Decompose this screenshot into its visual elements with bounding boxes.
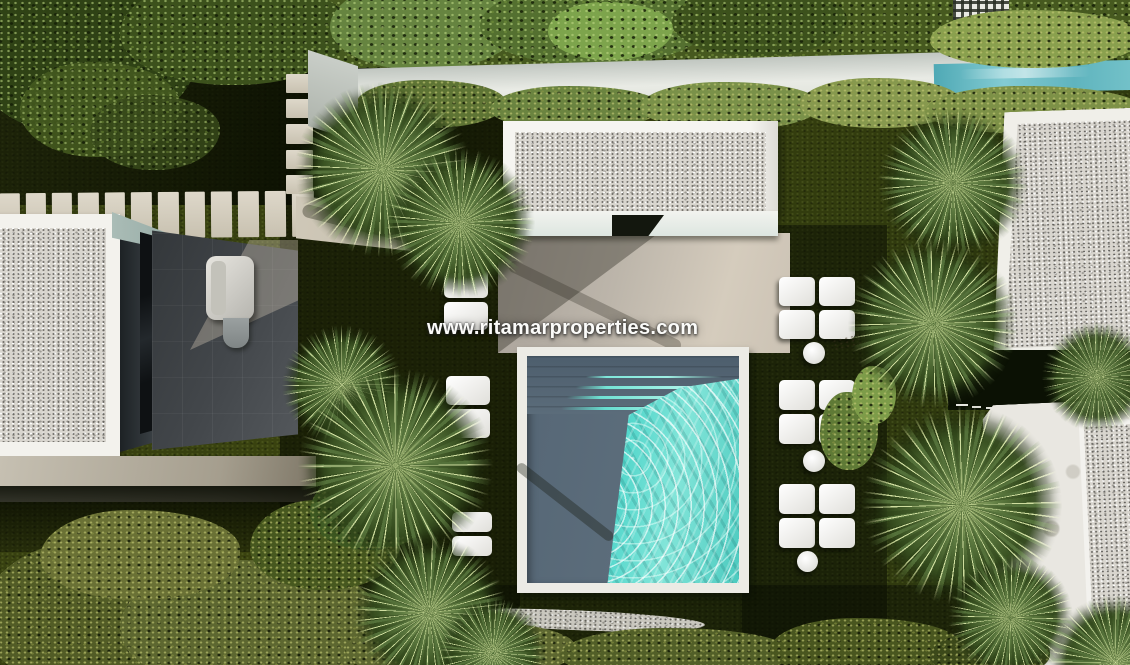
lounger-cushion [779, 277, 815, 306]
stepping-stone [265, 191, 286, 237]
lounger-cushion [779, 518, 815, 548]
hedge [930, 10, 1130, 68]
stepping-stone [211, 191, 232, 237]
shower-unit-tab [223, 318, 249, 348]
side-table [803, 450, 825, 472]
left-villa-gravel-roof [0, 228, 106, 442]
lounger-cushion [779, 484, 815, 514]
outdoor-shower-unit [206, 256, 254, 320]
shower-unit-panel [211, 261, 226, 315]
main-villa-gravel-roof [515, 132, 766, 211]
side-table [803, 342, 825, 364]
swimming-pool [517, 347, 749, 593]
lounger-cushion [779, 310, 815, 339]
shrub-bed [40, 510, 240, 600]
stepping-stone [185, 192, 205, 238]
lounger-cushion [819, 518, 855, 548]
side-table [797, 551, 818, 572]
lounger-cushion [819, 484, 855, 514]
aerial-photo: www.ritamarproperties.com [0, 0, 1130, 665]
step-glow-line [586, 376, 722, 378]
sun-lounger-group [779, 484, 855, 548]
lounger-cushion [779, 414, 815, 444]
watermark: www.ritamarproperties.com [427, 317, 697, 340]
lounger-cushion [779, 380, 815, 410]
stepping-stone [238, 191, 259, 237]
sun-lounger-group [779, 277, 855, 339]
